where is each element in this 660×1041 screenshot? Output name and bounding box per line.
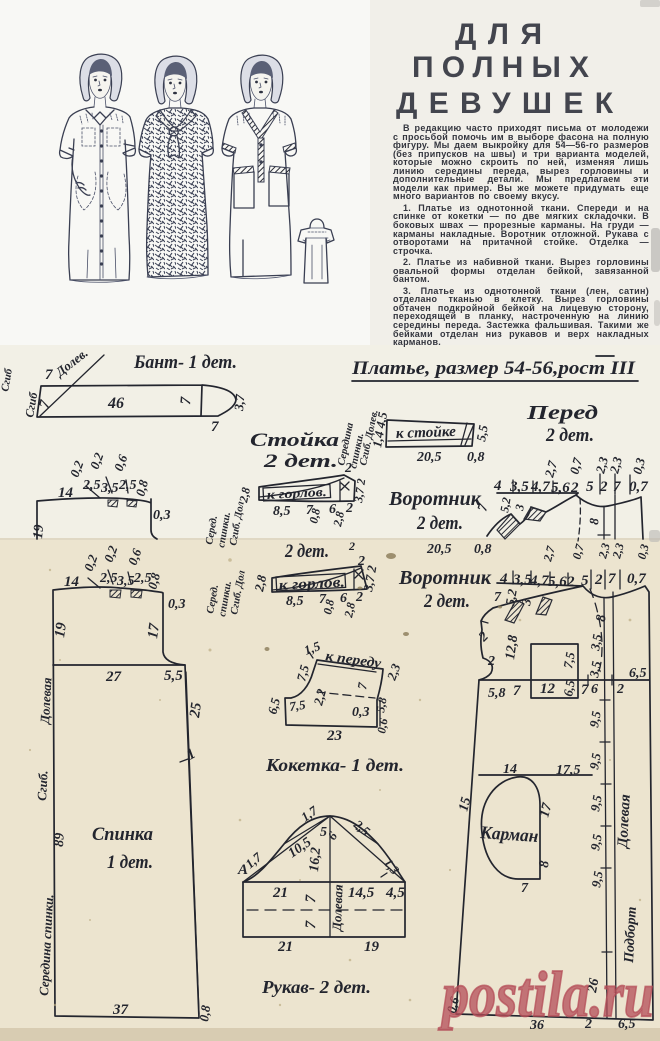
svg-text:Долевая: Долевая xyxy=(615,794,634,851)
svg-text:Долевая: Долевая xyxy=(329,884,346,932)
svg-text:1 дет.: 1 дет. xyxy=(107,852,153,873)
svg-text:6,5: 6,5 xyxy=(629,666,647,681)
svg-text:4: 4 xyxy=(499,571,508,587)
svg-text:37: 37 xyxy=(112,1002,129,1018)
svg-text:8: 8 xyxy=(594,614,610,622)
svg-text:7,5: 7,5 xyxy=(288,697,307,714)
svg-text:Кокетка- 1 дет.: Кокетка- 1 дет. xyxy=(265,755,404,775)
svg-text:Воротник: Воротник xyxy=(398,567,492,589)
svg-text:3,5: 3,5 xyxy=(586,659,604,679)
svg-text:5,6: 5,6 xyxy=(548,574,567,590)
svg-text:5,2: 5,2 xyxy=(497,496,513,513)
svg-text:16,2: 16,2 xyxy=(307,847,324,873)
svg-text:9,5: 9,5 xyxy=(586,709,604,728)
svg-text:2 дет.: 2 дет. xyxy=(416,513,463,534)
svg-text:19: 19 xyxy=(52,621,70,639)
svg-text:Платье, размер 54-56,рост III: Платье, размер 54-56,рост III xyxy=(351,358,636,379)
svg-text:5,8: 5,8 xyxy=(373,696,389,713)
svg-text:21: 21 xyxy=(277,939,293,955)
svg-text:0,3: 0,3 xyxy=(168,597,186,612)
svg-text:20,5: 20,5 xyxy=(426,542,452,557)
svg-text:0,7: 0,7 xyxy=(627,571,646,587)
svg-text:4,7: 4,7 xyxy=(530,479,550,495)
svg-text:5,6: 5,6 xyxy=(551,480,570,496)
svg-text:0,3: 0,3 xyxy=(153,508,171,523)
svg-text:7: 7 xyxy=(513,683,521,699)
svg-text:20,5: 20,5 xyxy=(416,450,442,465)
svg-text:2: 2 xyxy=(355,590,363,605)
svg-text:17: 17 xyxy=(145,622,163,640)
svg-text:89: 89 xyxy=(52,832,68,847)
svg-text:Перед: Перед xyxy=(526,402,598,424)
svg-text:2: 2 xyxy=(570,480,579,496)
svg-text:5,5: 5,5 xyxy=(164,668,183,684)
svg-text:17,5: 17,5 xyxy=(556,763,581,778)
svg-text:8,5: 8,5 xyxy=(273,504,291,519)
svg-text:0,8: 0,8 xyxy=(474,542,492,557)
svg-text:2: 2 xyxy=(487,654,495,669)
svg-text:2: 2 xyxy=(616,682,624,697)
svg-text:Стойка: Стойка xyxy=(250,430,340,451)
svg-text:0,8: 0,8 xyxy=(467,450,485,465)
svg-text:2 дет.: 2 дет. xyxy=(423,591,470,612)
svg-text:7: 7 xyxy=(494,590,502,605)
svg-text:9,5: 9,5 xyxy=(588,869,606,888)
svg-text:2: 2 xyxy=(566,574,575,590)
svg-text:7: 7 xyxy=(45,367,53,383)
svg-text:14: 14 xyxy=(58,485,74,501)
svg-text:4,7: 4,7 xyxy=(529,573,549,589)
svg-text:Долевая: Долевая xyxy=(37,677,54,725)
svg-text:6: 6 xyxy=(591,682,598,697)
svg-text:23: 23 xyxy=(326,728,343,744)
svg-text:3,5: 3,5 xyxy=(116,574,135,589)
svg-text:5: 5 xyxy=(581,573,589,589)
svg-text:9,5: 9,5 xyxy=(586,751,604,770)
svg-text:7: 7 xyxy=(608,571,616,587)
svg-text:6,5: 6,5 xyxy=(560,678,578,697)
svg-text:2: 2 xyxy=(348,539,355,553)
svg-text:14: 14 xyxy=(64,574,80,590)
svg-text:5,8: 5,8 xyxy=(488,686,506,701)
svg-text:Карман: Карман xyxy=(479,822,539,846)
svg-text:8,5: 8,5 xyxy=(286,594,304,609)
svg-text:5: 5 xyxy=(586,479,594,495)
svg-text:0,3: 0,3 xyxy=(352,705,370,720)
svg-text:7,5: 7,5 xyxy=(560,650,578,669)
svg-text:Воротник: Воротник xyxy=(388,488,482,510)
svg-text:12: 12 xyxy=(540,681,556,697)
svg-text:14,5: 14,5 xyxy=(348,885,375,901)
svg-text:к стойке: к стойке xyxy=(396,424,457,442)
svg-text:3,5: 3,5 xyxy=(100,481,119,496)
svg-text:Спинка: Спинка xyxy=(92,824,153,845)
svg-text:Бант- 1 дет.: Бант- 1 дет. xyxy=(133,352,237,373)
svg-text:21: 21 xyxy=(272,885,288,901)
svg-text:25: 25 xyxy=(187,701,205,720)
svg-text:Подборт: Подборт xyxy=(622,906,640,964)
svg-text:9,5: 9,5 xyxy=(587,832,605,851)
svg-text:2,5: 2,5 xyxy=(82,478,101,493)
svg-text:19: 19 xyxy=(31,524,47,539)
svg-text:7: 7 xyxy=(581,682,589,698)
svg-text:2 дет.: 2 дет. xyxy=(263,451,338,472)
svg-text:7: 7 xyxy=(211,419,219,435)
svg-text:7: 7 xyxy=(521,881,529,896)
svg-text:2: 2 xyxy=(599,479,608,495)
svg-text:19: 19 xyxy=(364,939,380,955)
svg-text:2,5: 2,5 xyxy=(99,571,118,586)
svg-text:Сгиб.: Сгиб. xyxy=(34,770,51,801)
svg-text:0,8: 0,8 xyxy=(196,1004,213,1023)
svg-text:9,5: 9,5 xyxy=(587,793,605,812)
svg-text:27: 27 xyxy=(105,669,122,685)
svg-text:14: 14 xyxy=(503,762,517,777)
svg-text:ДЛЯ: ДЛЯ xyxy=(455,18,542,51)
svg-text:8: 8 xyxy=(537,860,553,868)
svg-text:2 дет.: 2 дет. xyxy=(284,541,329,562)
svg-text:к горлов.: к горлов. xyxy=(266,484,327,502)
svg-text:7: 7 xyxy=(613,479,621,495)
svg-text:4: 4 xyxy=(493,478,502,494)
svg-text:postila.ru: postila.ru xyxy=(438,959,654,1031)
svg-text:3,5: 3,5 xyxy=(509,479,529,495)
svg-text:5,2: 5,2 xyxy=(502,587,520,606)
svg-text:4,5: 4,5 xyxy=(385,885,405,901)
svg-text:0,7: 0,7 xyxy=(629,479,648,495)
svg-text:3,5: 3,5 xyxy=(587,632,605,652)
svg-text:Рукав- 2 дет.: Рукав- 2 дет. xyxy=(261,977,371,997)
svg-text:46: 46 xyxy=(107,395,124,412)
svg-text:ДЕВУШЕК: ДЕВУШЕК xyxy=(396,87,614,120)
svg-text:2 дет.: 2 дет. xyxy=(545,425,594,446)
svg-text:0,6: 0,6 xyxy=(374,717,390,734)
svg-text:2: 2 xyxy=(594,572,603,588)
svg-text:5,5: 5,5 xyxy=(473,423,491,442)
svg-text:3,7: 3,7 xyxy=(231,393,247,412)
